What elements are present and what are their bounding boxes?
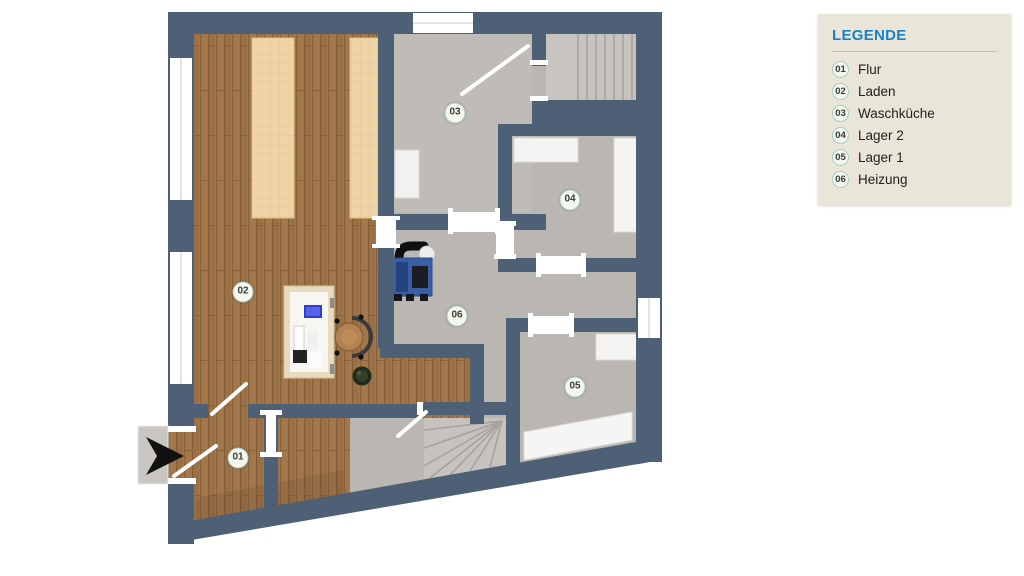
counter-left: [252, 38, 294, 218]
legend-divider: [832, 51, 997, 52]
cabinet-room03: [395, 150, 419, 198]
legend-list: 01Flur02Laden03Waschküche04Lager 205Lage…: [832, 61, 997, 188]
legend-label-03: Waschküche: [858, 106, 935, 121]
opening-room03-heating: [452, 212, 496, 232]
opening-vestibule: [266, 414, 276, 454]
keyboard: [294, 326, 304, 352]
tablet: [293, 350, 307, 363]
shelf-room04-top: [514, 138, 578, 162]
desk: [284, 286, 334, 378]
wall-right: [636, 12, 662, 462]
legend-badge-04: 04: [832, 127, 849, 144]
legend-item-02: 02Laden: [832, 83, 997, 100]
legend-label-06: Heizung: [858, 172, 908, 187]
paper: [308, 330, 317, 350]
opening-room04-bottom: [540, 256, 582, 274]
legend-badge-06: 06: [832, 171, 849, 188]
opening-shop-heating: [376, 220, 396, 244]
legend-label-02: Laden: [858, 84, 896, 99]
legend-label-05: Lager 1: [858, 150, 904, 165]
opening-stairhall: [530, 60, 548, 65]
legend-item-01: 01Flur: [832, 61, 997, 78]
legend-title: LEGENDE: [832, 27, 997, 44]
counter-right: [350, 38, 378, 218]
legend-item-04: 04Lager 2: [832, 127, 997, 144]
plant: [353, 367, 372, 386]
legend-label-01: Flur: [858, 62, 881, 77]
legend-item-05: 05Lager 1: [832, 149, 997, 166]
wall-shop-divider: [378, 32, 394, 348]
legend-badge-01: 01: [832, 61, 849, 78]
building: [138, 12, 662, 544]
wall-winder-top: [424, 402, 520, 415]
wall-room04-top: [498, 124, 662, 136]
wall-stairhall-south: [532, 100, 662, 124]
shelf-room04-right: [614, 138, 638, 232]
legend-badge-05: 05: [832, 149, 849, 166]
floorplan-page: 010203040506 LEGENDE 01Flur02Laden03Wasc…: [0, 0, 1024, 576]
legend-item-06: 06Heizung: [832, 171, 997, 188]
legend-badge-02: 02: [832, 83, 849, 100]
legend-label-04: Lager 2: [858, 128, 904, 143]
opening-room05-top: [532, 316, 570, 334]
opening-room04-left: [496, 226, 514, 254]
legend-item-03: 03Waschküche: [832, 105, 997, 122]
wall-room05-left: [506, 318, 520, 465]
legend-panel: LEGENDE 01Flur02Laden03Waschküche04Lager…: [818, 14, 1011, 205]
stairs-upper: [546, 34, 636, 100]
legend-badge-03: 03: [832, 105, 849, 122]
